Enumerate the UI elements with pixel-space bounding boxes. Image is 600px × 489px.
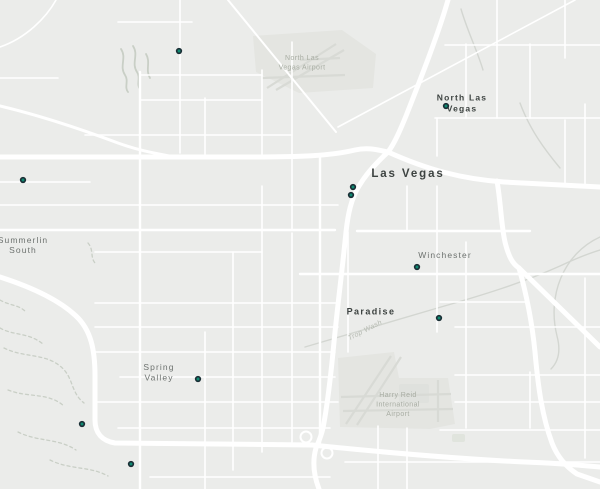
- map-marker[interactable]: [351, 185, 356, 190]
- map-marker[interactable]: [415, 265, 420, 270]
- label-spring-valley: SpringValley: [143, 362, 174, 383]
- map-marker[interactable]: [21, 178, 26, 183]
- map-marker[interactable]: [80, 422, 85, 427]
- label-winchester: Winchester: [418, 250, 472, 260]
- green-patch: [452, 434, 465, 442]
- map-marker[interactable]: [177, 49, 182, 54]
- label-paradise: Paradise: [347, 307, 396, 317]
- map-marker[interactable]: [196, 377, 201, 382]
- map-marker[interactable]: [437, 316, 442, 321]
- map-marker[interactable]: [349, 193, 354, 198]
- map-canvas[interactable]: Las VegasNorth LasVegasParadiseWincheste…: [0, 0, 600, 489]
- map-marker[interactable]: [444, 104, 449, 109]
- label-las-vegas: Las Vegas: [371, 168, 444, 180]
- map-marker[interactable]: [129, 462, 134, 467]
